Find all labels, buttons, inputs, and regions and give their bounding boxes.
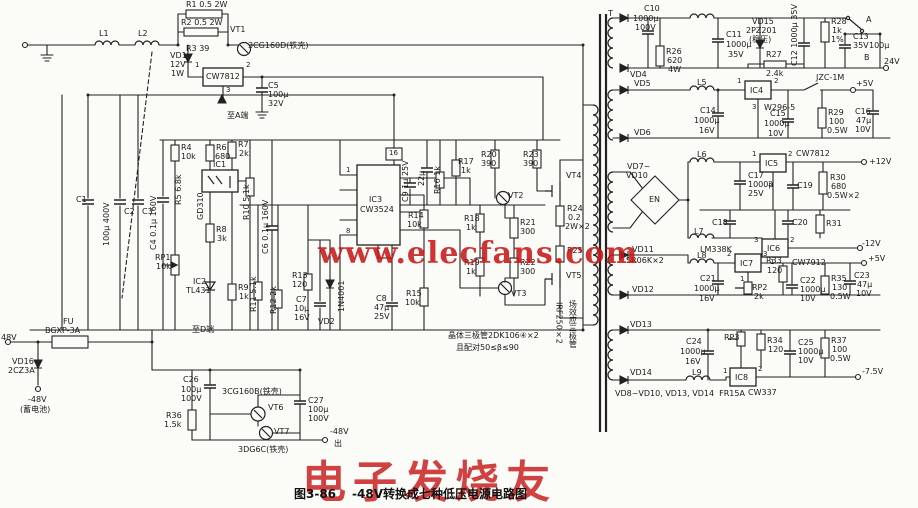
schematic-label: IC6 xyxy=(767,245,780,253)
figure-number: 图3-86 xyxy=(294,487,336,501)
schematic-label: 2k xyxy=(754,293,764,301)
figure-title: -48V转换成七种低压电源电路图 xyxy=(352,487,527,501)
schematic-label: C9 1μ 25V xyxy=(402,160,410,202)
schematic-label: 2 xyxy=(727,251,731,258)
schematic-label: 3k xyxy=(217,235,227,243)
schematic-label: R12 2k xyxy=(270,286,278,314)
schematic-label: 32V xyxy=(268,100,284,108)
schematic-label: 16V xyxy=(294,314,310,322)
schematic-label: 0.5W×2 xyxy=(827,192,859,200)
schematic-label: CW7812 xyxy=(796,150,830,158)
schematic-label: 100V xyxy=(181,395,202,403)
schematic-label: 1000μ xyxy=(694,285,719,293)
schematic-label: 2 xyxy=(790,237,794,244)
schematic-label: BGXP-3A xyxy=(45,327,80,335)
schematic-label: 8 xyxy=(346,228,350,235)
schematic-label: 10k xyxy=(407,221,422,229)
schematic-label: -48V xyxy=(28,396,47,404)
schematic-label: 1k xyxy=(239,293,249,301)
schematic-label: C15 xyxy=(770,110,786,118)
watermark-elecfans-url: www.elecfans.com xyxy=(318,236,638,271)
schematic-label: JZC-1M xyxy=(816,74,844,82)
schematic-label: VD5 xyxy=(634,80,651,88)
schematic-label: 25V xyxy=(374,313,390,321)
schematic-label: 1000μ xyxy=(694,117,719,125)
schematic-label: IC1 xyxy=(213,161,226,169)
schematic-label: 120 xyxy=(767,267,782,275)
schematic-label: R3 39 xyxy=(186,45,209,53)
schematic-label: 390 xyxy=(523,160,538,168)
schematic-label: 至D端 xyxy=(192,326,214,334)
schematic-label: (蓄电池) xyxy=(20,406,50,414)
schematic-label: 120 xyxy=(292,281,307,289)
schematic-label: 3CG160D(铁壳) xyxy=(248,42,309,50)
schematic-label: C14 xyxy=(700,107,716,115)
schematic-label: L2 xyxy=(138,30,148,38)
schematic-label: C11 xyxy=(726,31,742,39)
schematic-label: CW337 xyxy=(748,389,777,397)
schematic-label: IC4 xyxy=(750,87,763,95)
schematic-label: C12 1000μ 35V xyxy=(791,4,799,66)
schematic-label: R16 1k xyxy=(434,166,442,194)
schematic-label: -12V xyxy=(862,240,881,248)
schematic-label: 10V xyxy=(768,130,784,138)
schematic-label: 1% xyxy=(831,36,844,44)
figure-caption: 图3-86-48V转换成七种低压电源电路图 xyxy=(294,485,543,502)
schematic-label: 10V xyxy=(856,290,872,298)
schematic-label: 1 xyxy=(346,167,350,174)
schematic-label: A xyxy=(866,16,871,24)
schematic-label: 100μ 400V xyxy=(103,202,111,246)
schematic-label: 0.5W xyxy=(827,127,848,135)
schematic-label: 1W xyxy=(171,70,184,78)
schematic-label: 0.5W xyxy=(830,355,851,363)
schematic-label: 3 xyxy=(752,104,756,111)
schematic-label: 1000μ xyxy=(764,120,789,128)
schematic-label: VD10 xyxy=(626,172,648,180)
schematic-label: IC8 xyxy=(735,374,748,382)
schematic-label: 10k xyxy=(181,153,196,161)
schematic-label: 10V xyxy=(798,357,814,365)
schematic-label: R2 0.5 2W xyxy=(181,19,222,27)
schematic-label: IC3 xyxy=(369,196,382,204)
schematic-label: VD14 xyxy=(630,369,652,377)
schematic-label: +12V xyxy=(869,158,891,166)
schematic-label: 1 xyxy=(740,276,744,283)
schematic-label: 1000μ xyxy=(680,348,705,356)
schematic-label: L6 xyxy=(697,151,707,159)
schematic-label: (稳压) xyxy=(749,36,771,44)
schematic-label: -7.5V xyxy=(862,368,883,376)
schematic-label: 场效应三极管 xyxy=(568,300,576,348)
schematic-label: L8 xyxy=(697,252,707,260)
schematic-label: 3 xyxy=(226,87,230,94)
schematic-label: 120 xyxy=(768,346,783,354)
schematic-label: R11 5.1k xyxy=(250,276,258,312)
schematic-label: 2CZ3A xyxy=(8,367,35,375)
schematic-label: VT7 xyxy=(274,428,289,436)
schematic-label: 35V xyxy=(853,42,869,50)
schematic-label: L5 xyxy=(697,79,707,87)
schematic-label: 100V xyxy=(635,24,656,32)
schematic-label: L9 xyxy=(692,369,702,377)
schematic-label: RP3 xyxy=(724,334,739,342)
schematic-label: VT6 xyxy=(268,404,283,412)
schematic-label: 35V xyxy=(728,51,744,59)
schematic-label: EN xyxy=(649,196,660,204)
schematic-label: R31 xyxy=(826,220,842,228)
schematic-label: 16V xyxy=(699,127,715,135)
schematic-label: 1k xyxy=(466,224,476,232)
schematic-label: 48V xyxy=(1,334,17,342)
schematic-label: 25V xyxy=(748,190,764,198)
schematic-label: L7 xyxy=(694,228,704,236)
schematic-label: VD6 xyxy=(634,129,651,137)
schematic-label: C20 xyxy=(792,219,808,227)
schematic-label: 3 xyxy=(754,237,758,244)
schematic-label: 1 xyxy=(752,151,756,158)
schematic-label: 10k xyxy=(156,263,171,271)
schematic-label: B xyxy=(864,54,870,62)
schematic-label: VT2 xyxy=(508,192,523,200)
schematic-label: VT5 xyxy=(566,272,581,280)
schematic-label: +5V xyxy=(868,255,885,263)
schematic-label: +5V xyxy=(856,80,873,88)
schematic-label: VD13 xyxy=(630,321,652,329)
schematic-label: 390 xyxy=(481,160,496,168)
schematic-label: C26 xyxy=(183,376,199,384)
schematic-label: CW7912 xyxy=(792,259,826,267)
schematic-label: 2 xyxy=(774,78,778,85)
schematic-label: C10 xyxy=(644,5,660,13)
schematic-label: C6 0.1μ 160V xyxy=(262,200,270,254)
schematic-label: 晶体三极管2DK106④×2 xyxy=(448,332,539,340)
schematic-label: C18 xyxy=(712,219,728,227)
schematic-label: IRF250×2 xyxy=(554,302,562,344)
schematic-label: R5 6.8k xyxy=(175,174,183,205)
schematic-page: L1L2R1 0.5 2WR2 0.5 2WR3 39VT13CG160D(铁壳… xyxy=(0,0,918,508)
schematic-label: 100μ xyxy=(869,42,889,50)
schematic-label: 16V xyxy=(685,358,701,366)
schematic-label: GD310 xyxy=(197,192,205,220)
schematic-label: 至A端 xyxy=(227,112,248,120)
schematic-label: R1 0.5 2W xyxy=(186,1,227,9)
schematic-label: C19 xyxy=(797,182,813,190)
schematic-label: 1 xyxy=(195,62,199,69)
schematic-label: VT3 xyxy=(511,290,526,298)
schematic-label: 2 xyxy=(758,366,762,373)
schematic-label: CW3524 xyxy=(360,206,394,214)
schematic-label: R27 xyxy=(766,51,782,59)
schematic-label: -48V xyxy=(330,428,349,436)
schematic-label: R10 5.1k xyxy=(243,184,251,220)
schematic-label: 1000μ xyxy=(726,41,751,49)
schematic-label: 16V xyxy=(699,295,715,303)
schematic-label: 1k xyxy=(461,167,471,175)
schematic-label: VD2 xyxy=(318,318,335,326)
schematic-label: 1 xyxy=(737,78,741,85)
schematic-label: IC7 xyxy=(740,260,753,268)
schematic-label: T xyxy=(608,10,613,18)
schematic-label: 100V xyxy=(308,415,329,423)
schematic-label: VD8~VD10, VD13, VD14 FR15A xyxy=(615,390,745,398)
schematic-label: IC5 xyxy=(765,160,778,168)
schematic-label: 2 xyxy=(246,62,250,69)
schematic-label: TL431 xyxy=(186,287,211,295)
schematic-label: L1 xyxy=(99,30,109,38)
schematic-label: 2W×2 xyxy=(565,223,590,231)
schematic-label: 且配对50≤β≤90 xyxy=(456,344,519,352)
schematic-label: C2 xyxy=(124,208,135,216)
schematic-label: 10V xyxy=(800,295,816,303)
schematic-label: VT1 xyxy=(230,26,245,34)
schematic-label: 4W xyxy=(668,66,681,74)
schematic-label: 16 xyxy=(389,150,398,157)
schematic-label: 1N4001 xyxy=(338,281,346,312)
schematic-label: 10V xyxy=(855,126,871,134)
schematic-label: 2 xyxy=(788,151,792,158)
schematic-label: 1.5k xyxy=(164,421,181,429)
schematic-label: 22μ xyxy=(418,171,426,186)
schematic-label: C24 xyxy=(686,338,702,346)
schematic-label: CW7812 xyxy=(206,73,240,81)
schematic-label: 24V xyxy=(884,58,900,66)
schematic-label: 2k xyxy=(239,150,249,158)
schematic-label: 0.5W xyxy=(830,293,851,301)
schematic-label: C1 xyxy=(76,196,87,204)
schematic-label: C4 0.1μ 160V xyxy=(150,196,158,250)
schematic-label: VT4 xyxy=(566,172,581,180)
schematic-label: 3CG160B(铁壳) xyxy=(222,388,282,396)
schematic-label: 10k xyxy=(405,299,420,307)
schematic-label: R33 xyxy=(766,257,782,265)
schematic-label: C21 xyxy=(700,275,716,283)
schematic-label: 3DG6C(铁壳) xyxy=(238,446,288,454)
schematic-label: 1 xyxy=(723,368,727,375)
schematic-label: VD12 xyxy=(632,286,654,294)
